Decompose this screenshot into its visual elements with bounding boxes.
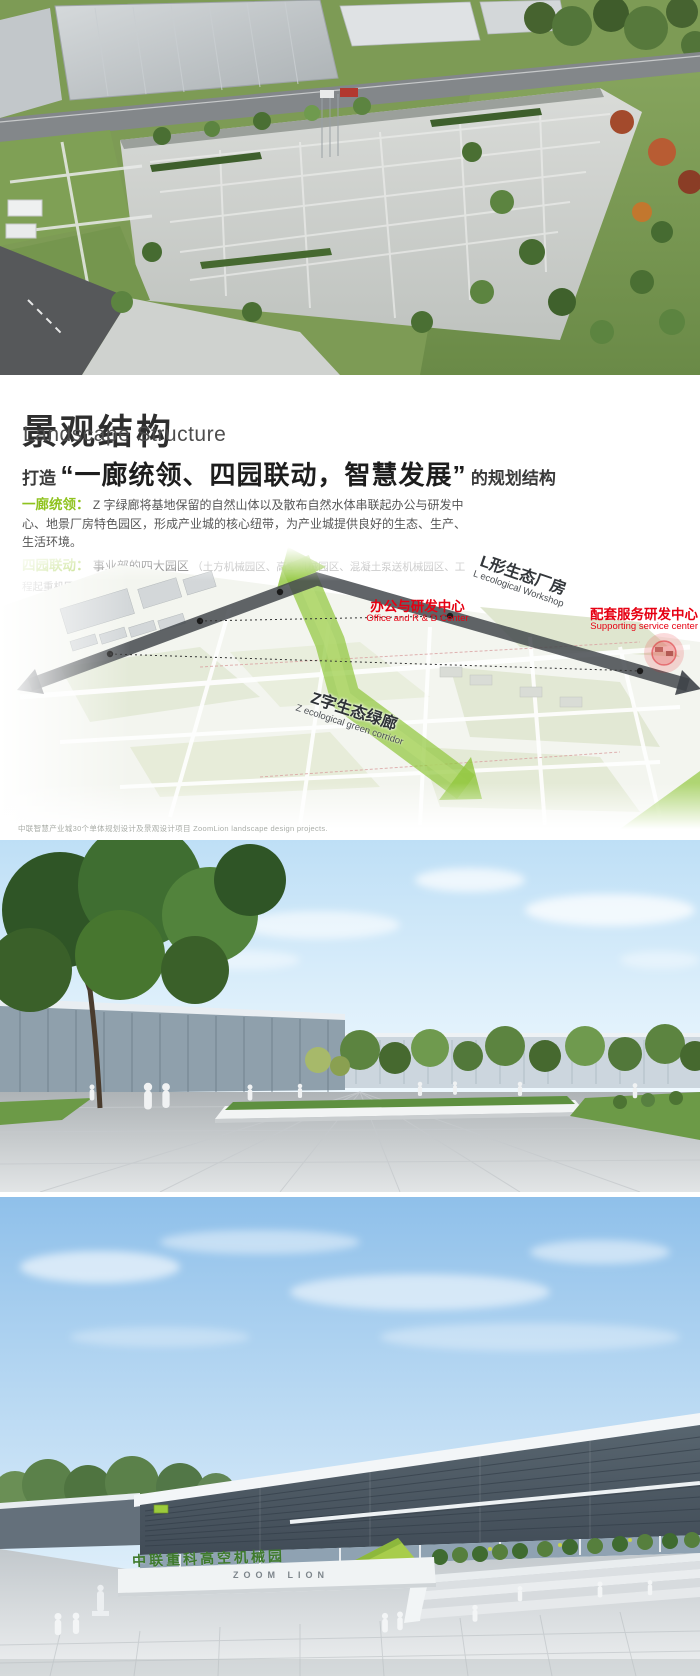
entrance-render-photo: 中联重科高空机械园 ZOOM LION bbox=[0, 1197, 700, 1676]
entrance-render-image bbox=[0, 1197, 700, 1676]
highlight-circle bbox=[644, 633, 684, 673]
slogan-suffix: 的规划结构 bbox=[471, 469, 556, 488]
page: 景观结构 Landscape Structure 打造 “一廊统领、四园联动，智… bbox=[0, 0, 700, 1676]
slogan-prefix: 打造 bbox=[22, 469, 56, 488]
aerial-render-photo bbox=[0, 0, 700, 375]
wall-inscription: ZOOM LION bbox=[233, 1570, 329, 1580]
slogan-quote: “一廊统领、四园联动，智慧发展” bbox=[60, 460, 466, 490]
zoomlion-logo-sign bbox=[154, 1505, 168, 1513]
shuttle-bus bbox=[340, 88, 358, 97]
paragraph-corridor-label: 一廊统领： bbox=[22, 497, 90, 512]
slogan: 打造 “一廊统领、四园联动，智慧发展” 的规划结构 bbox=[22, 455, 556, 492]
plaza-render-photo bbox=[0, 840, 700, 1192]
landscape-structure-section: 景观结构 Landscape Structure 打造 “一廊统领、四园联动，智… bbox=[0, 375, 700, 840]
masterplan-diagram-image bbox=[0, 547, 700, 829]
plaza-render-image bbox=[0, 840, 700, 1192]
page-subtitle: Landscape Structure bbox=[23, 423, 226, 447]
masterplan-diagram: 办公与研发中心 Office and R & D Center L形生态厂房 L… bbox=[0, 547, 700, 829]
paragraph-corridor: 一廊统领： Z 字绿廊将基地保留的自然山体以及散布自然水体串联起办公与研发中心、… bbox=[22, 495, 474, 551]
project-caption: 中联智慧产业城30个单体规划设计及景观设计项目 ZoomLion landsca… bbox=[18, 823, 328, 834]
aerial-render-image bbox=[0, 0, 700, 375]
